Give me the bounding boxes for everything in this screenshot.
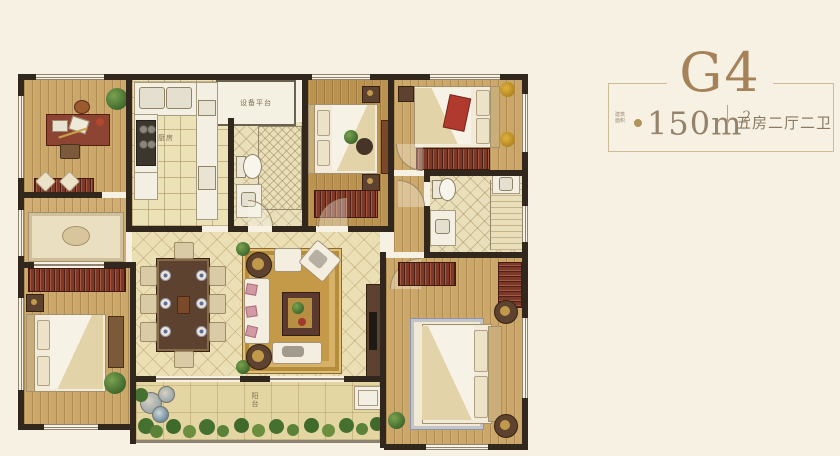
- place-setting: [196, 298, 207, 309]
- desk-paper: [52, 120, 68, 132]
- dining-chair: [209, 266, 226, 286]
- study-chair: [60, 144, 80, 159]
- nightstand-top: [500, 306, 510, 316]
- dining-chair: [140, 266, 157, 286]
- nightstand-top: [500, 420, 510, 430]
- pillow: [476, 90, 490, 116]
- dining-chair: [209, 294, 226, 314]
- shrub: [287, 424, 299, 436]
- wardrobe: [398, 262, 456, 286]
- window: [312, 74, 370, 80]
- unit-spec: 五房二厅二卫: [736, 112, 832, 133]
- unit-title: G4: [667, 46, 773, 100]
- plant: [104, 372, 126, 394]
- balcony-railing: [136, 440, 380, 443]
- wall: [130, 262, 136, 378]
- wall: [18, 262, 34, 268]
- shrub: [339, 418, 354, 433]
- sliding-door-glass: [270, 378, 344, 380]
- wall: [228, 118, 234, 232]
- sofa-pillow: [245, 305, 257, 317]
- shrub: [199, 419, 215, 435]
- nightstand-knob: [367, 90, 373, 96]
- dining-chair: [174, 351, 194, 368]
- kitchen-sink: [166, 87, 192, 109]
- shower-area: [258, 126, 302, 210]
- plant: [344, 130, 358, 144]
- shrub: [356, 423, 368, 435]
- kitchen-label: 厨房: [158, 134, 174, 143]
- shrub: [134, 388, 148, 402]
- window: [522, 94, 528, 152]
- pillow: [474, 330, 488, 372]
- basin-icon: [435, 219, 450, 234]
- pouf: [500, 82, 515, 97]
- pillow: [37, 356, 50, 386]
- wardrobe: [28, 268, 126, 292]
- toilet-icon: [243, 154, 262, 179]
- table-centerpiece: [177, 296, 190, 314]
- shrub: [166, 419, 181, 434]
- kitchen-appliance: [198, 166, 216, 190]
- bed-headboard: [490, 86, 500, 148]
- dining-chair: [140, 322, 157, 342]
- pillow: [474, 376, 488, 418]
- wall: [136, 376, 156, 382]
- armchair: [274, 248, 302, 272]
- sofa-pillow: [245, 283, 258, 296]
- wall: [344, 376, 380, 382]
- table-decor: [298, 318, 306, 326]
- wardrobe: [416, 148, 490, 170]
- nightstand: [398, 86, 414, 102]
- pillow: [37, 320, 50, 350]
- blanket: [50, 315, 103, 389]
- bed-headboard: [488, 326, 502, 422]
- window: [44, 424, 98, 430]
- pillow: [317, 140, 330, 166]
- sliding-door-glass: [34, 264, 104, 266]
- wall: [228, 226, 248, 232]
- wall: [302, 226, 316, 232]
- place-setting: [160, 270, 171, 281]
- area-prefix: 建筑 面积: [612, 112, 628, 124]
- shrub: [304, 418, 319, 433]
- area-number: 150: [647, 105, 711, 143]
- wall: [380, 252, 386, 448]
- pillow: [476, 118, 490, 144]
- planter-pot: [152, 406, 169, 423]
- shrub: [269, 419, 284, 434]
- wall: [18, 192, 102, 198]
- equipment-platform-label: 设备平台: [240, 99, 272, 108]
- pouf: [500, 132, 515, 147]
- wall: [424, 252, 528, 258]
- divider-line: [727, 105, 728, 132]
- unit-title-wrap: G4: [608, 46, 832, 100]
- shrub: [150, 425, 163, 438]
- window: [522, 206, 528, 242]
- area-prefix-line2: 面积: [612, 118, 628, 124]
- balcony-label: 阳台: [250, 392, 259, 408]
- side-table-top: [252, 258, 264, 270]
- kitchen-sink: [139, 87, 165, 109]
- wall: [424, 206, 430, 256]
- wall: [126, 74, 132, 232]
- planter-pot: [158, 386, 175, 403]
- window: [426, 444, 488, 450]
- plant: [388, 412, 405, 429]
- window: [18, 298, 24, 390]
- sliding-door-glass: [156, 378, 240, 380]
- shrub: [252, 424, 265, 437]
- place-setting: [160, 298, 171, 309]
- side-table-top: [252, 350, 264, 362]
- wall: [126, 226, 202, 232]
- dining-chair: [209, 322, 226, 342]
- balcony-mat-inner: [358, 390, 378, 406]
- dining-chair: [174, 242, 194, 259]
- wall: [424, 170, 528, 176]
- desk-pot: [96, 118, 104, 126]
- washer-drum-icon: [499, 177, 513, 191]
- table-plant: [292, 302, 304, 314]
- window: [36, 74, 104, 80]
- shrub: [217, 425, 229, 437]
- window: [522, 318, 528, 398]
- window: [18, 210, 24, 256]
- bullet-icon: [634, 119, 642, 127]
- shrub: [234, 418, 249, 433]
- plant: [106, 88, 128, 110]
- fridge: [134, 172, 158, 200]
- teapot-icon: [74, 100, 90, 114]
- stove-burner: [147, 140, 156, 149]
- pillow: [317, 110, 330, 136]
- shrub: [322, 424, 335, 437]
- wall: [302, 74, 308, 232]
- window: [430, 74, 500, 80]
- blanket: [422, 326, 474, 420]
- tv-icon: [369, 312, 377, 350]
- nightstand-knob: [31, 299, 37, 305]
- shrub: [183, 425, 196, 438]
- bench-decor: [282, 346, 304, 357]
- nightstand-knob: [367, 178, 373, 184]
- wall: [424, 176, 430, 182]
- place-setting: [196, 326, 207, 337]
- wall: [130, 378, 136, 444]
- place-setting: [196, 270, 207, 281]
- wall: [240, 376, 270, 382]
- floorplan-screenshot: 设备平台 厨房: [0, 0, 840, 456]
- kitchen-appliance: [198, 100, 216, 116]
- plant: [236, 242, 250, 256]
- bedroom-bench: [108, 316, 124, 368]
- wall: [388, 74, 394, 232]
- rug-medallion: [62, 226, 90, 246]
- toilet-icon: [439, 178, 456, 201]
- window: [18, 96, 24, 178]
- place-setting: [160, 326, 171, 337]
- dining-chair: [140, 294, 157, 314]
- stool: [356, 138, 373, 155]
- stove-burner: [147, 125, 156, 134]
